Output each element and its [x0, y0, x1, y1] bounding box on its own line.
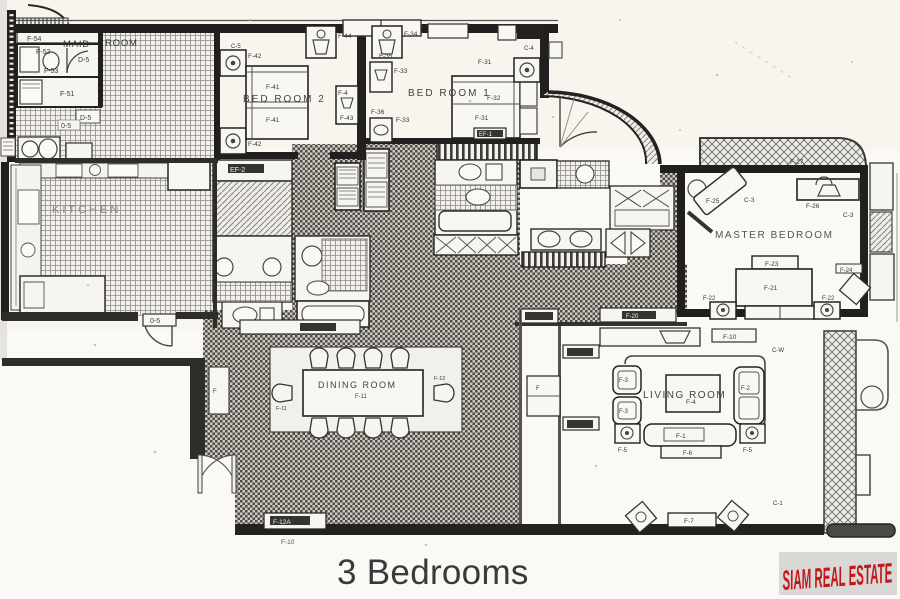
svg-text:MASTER BEDROOM: MASTER BEDROOM — [715, 230, 834, 241]
svg-text:F-31: F-31 — [475, 115, 489, 122]
svg-text:C-3: C-3 — [744, 197, 755, 204]
svg-text:F: F — [536, 386, 540, 392]
svg-text:MAID: MAID — [63, 39, 90, 50]
svg-text:D-5: D-5 — [80, 115, 91, 122]
svg-text:F-11: F-11 — [276, 406, 287, 412]
svg-text:F-31: F-31 — [478, 59, 492, 66]
svg-text:D-5: D-5 — [78, 57, 89, 64]
svg-text:F-51: F-51 — [60, 91, 75, 98]
svg-text:F-26: F-26 — [806, 203, 820, 210]
svg-text:F-41: F-41 — [266, 84, 280, 91]
svg-text:F-20: F-20 — [626, 314, 639, 320]
svg-text:3 Bedrooms: 3 Bedrooms — [337, 553, 529, 592]
svg-text:F-21: F-21 — [764, 285, 778, 292]
svg-text:F-44: F-44 — [338, 33, 352, 40]
svg-text:F-35: F-35 — [379, 53, 393, 60]
svg-text:F-2: F-2 — [741, 386, 751, 392]
svg-text:BED ROOM 1: BED ROOM 1 — [408, 88, 491, 99]
svg-text:C-W: C-W — [772, 348, 784, 354]
svg-text:F-25: F-25 — [706, 198, 720, 205]
svg-text:F-3: F-3 — [619, 378, 629, 384]
svg-text:F-10: F-10 — [723, 334, 737, 341]
svg-text:F-3: F-3 — [619, 409, 629, 415]
svg-text:F-32: F-32 — [487, 95, 501, 102]
svg-text:F-10: F-10 — [281, 539, 295, 546]
svg-text:F-11: F-11 — [355, 394, 368, 400]
svg-text:F-52: F-52 — [36, 49, 51, 56]
svg-text:F-36: F-36 — [371, 109, 385, 116]
svg-text:F-12: F-12 — [434, 376, 445, 382]
svg-text:F-43: F-43 — [340, 115, 354, 122]
svg-text:C-1: C-1 — [773, 501, 783, 507]
svg-text:F-33: F-33 — [394, 68, 408, 75]
svg-text:C-4: C-4 — [524, 46, 534, 52]
svg-text:ROOM: ROOM — [105, 38, 138, 49]
svg-text:F-53: F-53 — [44, 68, 59, 75]
svg-text:F-42: F-42 — [248, 53, 262, 60]
svg-text:LIVING ROOM: LIVING ROOM — [643, 390, 726, 401]
svg-text:F-6: F-6 — [683, 451, 693, 457]
svg-text:F-23: F-23 — [765, 261, 779, 268]
svg-text:DINING ROOM: DINING ROOM — [318, 380, 397, 390]
svg-text:F-54: F-54 — [27, 36, 42, 43]
svg-text:C-3: C-3 — [843, 212, 854, 219]
svg-text:F: F — [213, 389, 217, 395]
svg-text:0-5: 0-5 — [150, 318, 160, 325]
svg-text:F-41: F-41 — [266, 117, 280, 124]
svg-text:F-34: F-34 — [404, 31, 418, 38]
svg-text:F-5: F-5 — [618, 448, 628, 454]
svg-text:0-5: 0-5 — [61, 123, 71, 130]
svg-text:F-12A: F-12A — [273, 519, 291, 526]
svg-text:F-5: F-5 — [743, 448, 753, 454]
svg-text:EF-2: EF-2 — [230, 167, 245, 174]
svg-text:C-5: C-5 — [231, 44, 241, 50]
svg-text:F-42: F-42 — [248, 141, 262, 148]
svg-text:F-27: F-27 — [790, 159, 804, 166]
svg-text:F-4: F-4 — [338, 90, 348, 97]
svg-text:F-22: F-22 — [822, 296, 835, 302]
svg-text:BED ROOM 2: BED ROOM 2 — [243, 94, 326, 105]
svg-text:EF-1: EF-1 — [479, 132, 493, 138]
svg-text:F-1: F-1 — [676, 433, 686, 440]
svg-text:F-24: F-24 — [840, 268, 853, 274]
svg-text:F-7: F-7 — [684, 518, 694, 525]
svg-text:F-33: F-33 — [396, 117, 410, 124]
svg-text:F-22: F-22 — [703, 296, 716, 302]
svg-text:KITCHEN: KITCHEN — [52, 204, 121, 216]
